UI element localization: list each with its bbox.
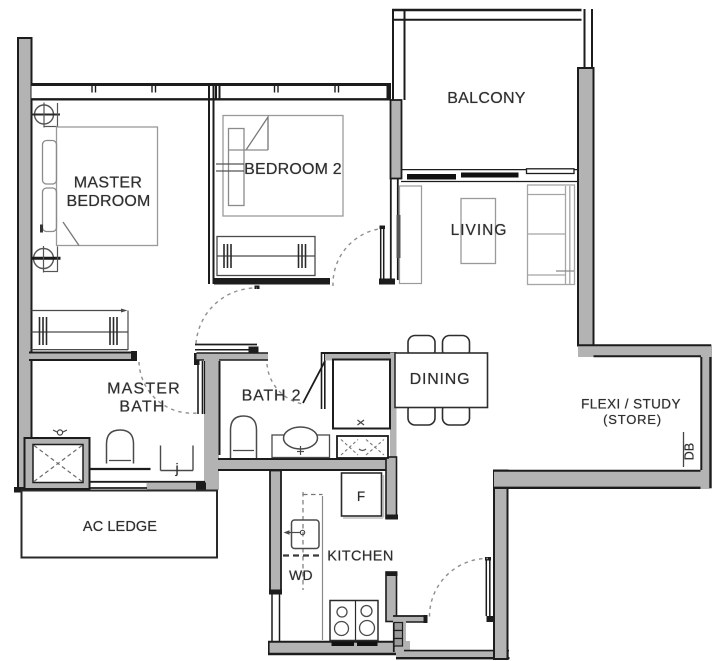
svg-text:KITCHEN: KITCHEN [327,549,393,565]
svg-text:MASTER: MASTER [74,175,142,192]
svg-text:j: j [174,460,178,476]
svg-text:DB: DB [683,443,697,460]
svg-text:AC LEDGE: AC LEDGE [83,519,157,535]
svg-text:MASTER: MASTER [107,381,181,398]
svg-text:BATH 2: BATH 2 [242,388,302,405]
svg-text:BALCONY: BALCONY [447,90,526,107]
svg-text:F: F [357,489,365,504]
svg-text:BATH: BATH [119,399,165,416]
svg-text:BEDROOM: BEDROOM [66,193,150,210]
svg-text:DINING: DINING [410,371,471,388]
svg-text:BEDROOM 2: BEDROOM 2 [244,161,342,178]
svg-text:WD: WD [289,567,313,583]
svg-text:(STORE): (STORE) [603,412,662,427]
svg-text:LIVING: LIVING [451,222,508,239]
svg-text:FLEXI / STUDY: FLEXI / STUDY [581,397,681,412]
